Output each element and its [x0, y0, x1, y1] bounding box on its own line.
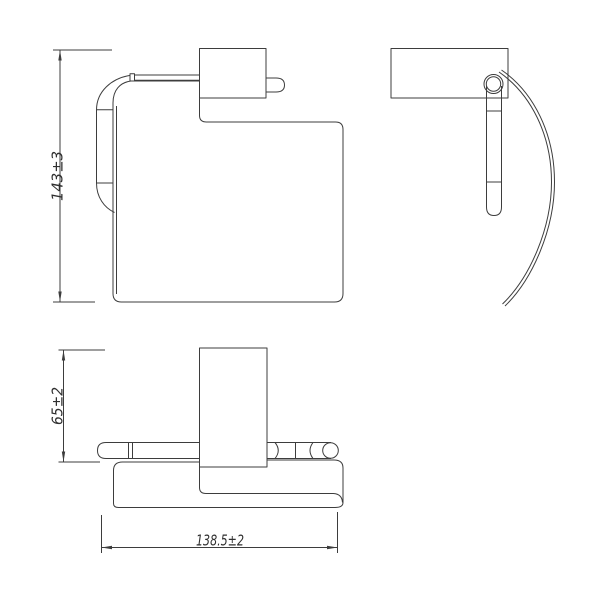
dimension-width: 138.5±2: [102, 512, 338, 553]
roll-spindle-top-right: [267, 443, 338, 459]
cover-outline-front: [113, 81, 343, 302]
wall-bracket-top: [200, 348, 268, 467]
cover-curve-inner: [499, 72, 552, 304]
wall-bracket-front: [200, 49, 267, 99]
dimension-depth-label: 65±2: [49, 387, 67, 425]
arrowhead-down: [58, 292, 61, 303]
drawing-canvas: 143±3 65±2 138.5±2: [0, 0, 600, 600]
hinge-inner-circle: [486, 77, 500, 91]
roll-spindle-top-left: [98, 443, 200, 459]
arrowhead-up: [62, 350, 65, 361]
drawing-sheet: 143±3 65±2 138.5±2: [0, 0, 600, 600]
cover-profile-curve: [499, 70, 555, 306]
side-view: [391, 49, 555, 307]
dimension-height-label: 143±3: [49, 151, 67, 201]
spindle-left-end-cap: [98, 443, 107, 459]
spindle-left-cap: [130, 74, 135, 81]
front-view: [97, 49, 344, 303]
cover-inner-step: [200, 467, 343, 503]
spindle-sleeve-cap: [310, 443, 313, 459]
arrowhead-up: [58, 50, 61, 61]
spindle-end-cap: [266, 78, 285, 92]
top-view: [98, 348, 344, 508]
dimension-depth: 65±2: [49, 350, 106, 462]
arrowhead-down: [62, 452, 65, 463]
arrowhead-right: [327, 546, 338, 549]
spindle-end-circle: [323, 443, 339, 459]
spindle-ring-bulge: [275, 443, 278, 459]
roll-holder-arm: [487, 86, 502, 216]
dimension-width-label: 138.5±2: [196, 532, 244, 550]
arm-outline: [487, 86, 502, 216]
roll-spindle-front: [130, 74, 200, 81]
dimension-height: 143±3: [49, 50, 113, 302]
arrowhead-left: [102, 546, 113, 549]
